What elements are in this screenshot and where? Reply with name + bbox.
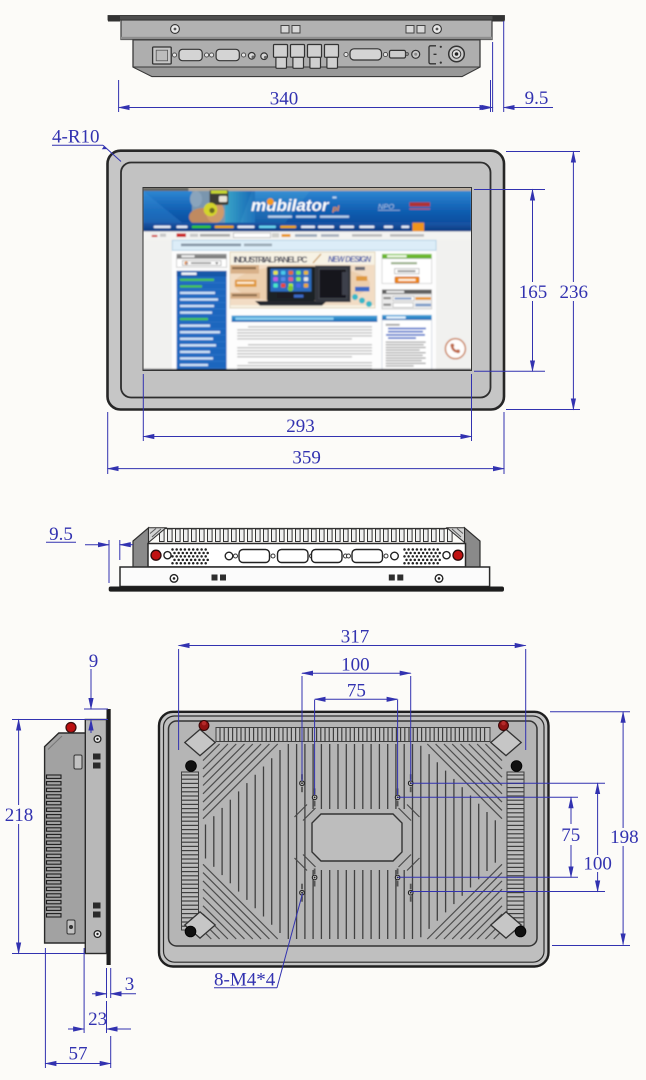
svg-text:198: 198 (610, 827, 639, 848)
svg-text:236: 236 (559, 282, 588, 303)
svg-text:4-R10: 4-R10 (52, 127, 100, 148)
svg-text:9.5: 9.5 (525, 88, 549, 109)
svg-text:NEW DESIGN: NEW DESIGN (328, 255, 371, 264)
svg-text:340: 340 (270, 89, 299, 110)
svg-text:359: 359 (292, 448, 321, 469)
svg-text:mubilator: mubilator (251, 196, 330, 215)
svg-text:317: 317 (341, 627, 370, 648)
svg-text:23: 23 (88, 1009, 107, 1030)
svg-text:165: 165 (519, 282, 548, 303)
svg-text:75: 75 (347, 680, 366, 701)
svg-text:100: 100 (583, 854, 612, 875)
svg-text:3: 3 (125, 974, 135, 995)
svg-text:293: 293 (286, 416, 315, 437)
svg-text:INDUSTRIAL PANEL PC: INDUSTRIAL PANEL PC (234, 255, 308, 265)
svg-text:9: 9 (89, 651, 99, 672)
svg-text:NPO: NPO (378, 202, 394, 211)
svg-text:pl: pl (332, 204, 341, 213)
svg-text:218: 218 (5, 805, 34, 826)
svg-text:75: 75 (561, 825, 580, 846)
svg-text:57: 57 (69, 1044, 88, 1065)
svg-text:100: 100 (341, 655, 370, 676)
